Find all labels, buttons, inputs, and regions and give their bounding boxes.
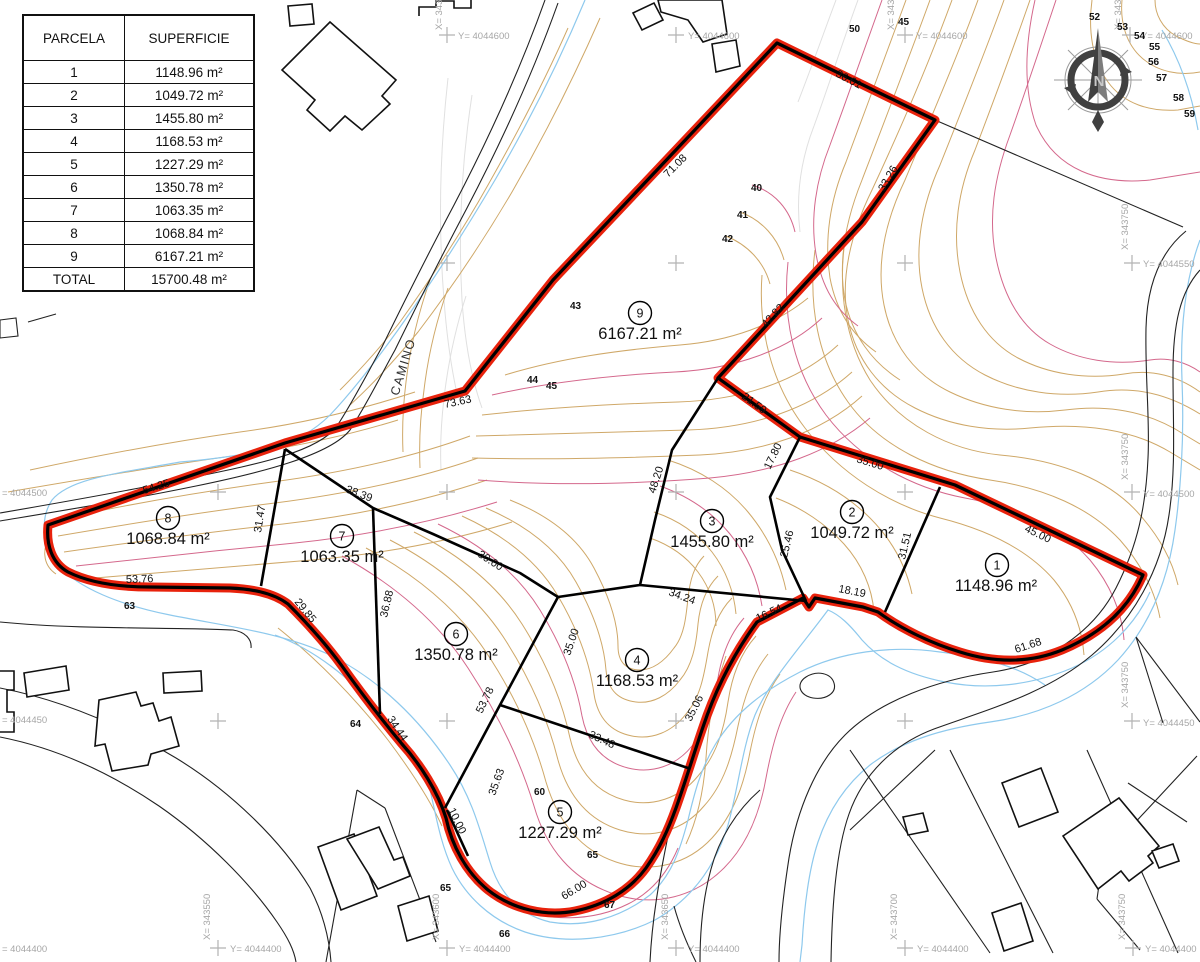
grid-label: X= 343700	[886, 0, 897, 30]
elevation-label: 65	[587, 850, 599, 861]
contour	[472, 396, 862, 459]
grid-label: X= 343750	[1117, 894, 1128, 940]
dimension-label: 35.63	[487, 767, 508, 797]
divider-line	[285, 449, 558, 597]
grid-label: Y= 4044600	[916, 31, 968, 42]
table-header-row: PARCELA SUPERFICIE	[24, 16, 254, 61]
grid-label: Y= 4044550	[1143, 259, 1195, 270]
dimension-labels: 36.61 33.26 71.08 42.82 21.59 35.00 45.0…	[126, 68, 1053, 903]
grid-label: Y= 4044600	[1141, 31, 1193, 42]
grid-label: Y= 4044400	[917, 944, 969, 955]
contour-index	[814, 0, 882, 326]
elevation-label: 56	[1148, 57, 1160, 68]
parcel-area-cell: 6167.21 m²	[125, 245, 254, 268]
grid-label: X= 343750	[1120, 434, 1131, 480]
contour	[798, 0, 836, 102]
table-row: 96167.21 m²	[24, 245, 254, 268]
elevation-label: 58	[1173, 93, 1185, 104]
column-header-superficie: SUPERFICIE	[125, 16, 254, 61]
elevation-label: 59	[1184, 109, 1196, 120]
lot-line	[1136, 637, 1200, 723]
compass-needle-light	[1098, 28, 1108, 102]
parcel-id-cell: 6	[24, 176, 125, 199]
dimension-label: 33.48	[587, 729, 617, 752]
parcel-label-3: 3 1455.80 m²	[670, 510, 754, 552]
parcel-id-cell: 4	[24, 130, 125, 153]
dimension-label: 35.00	[561, 627, 581, 657]
table-row: 71063.35 m²	[24, 199, 254, 222]
parcel-number: 5	[557, 806, 564, 820]
parcel-area: 1455.80 m²	[670, 533, 754, 551]
building-outline	[288, 4, 314, 26]
dimension-label: 25.46	[778, 529, 796, 559]
building-outline	[992, 903, 1033, 951]
dimension-label: 18.19	[837, 583, 866, 600]
contour	[420, 288, 448, 468]
grid-label: X= 343550	[202, 894, 213, 940]
elevation-label: 45	[546, 381, 558, 392]
building-outline	[712, 40, 740, 72]
parcel-number: 2	[849, 506, 856, 520]
grid-label: = 4044500	[2, 488, 47, 499]
parcel-number: 9	[637, 307, 644, 321]
dimension-label: 66.00	[559, 878, 589, 902]
grid-label: Y= 4044400	[459, 944, 511, 955]
building-outline	[1002, 768, 1058, 827]
elevation-label: 41	[737, 210, 749, 221]
grid-label: X= 343750	[1120, 204, 1131, 250]
dimension-label: 36.88	[378, 589, 396, 619]
parcel-label-2: 2 1049.72 m²	[810, 501, 894, 543]
parcel-area-cell: 1350.78 m²	[125, 176, 254, 199]
lot-line	[935, 120, 1183, 227]
table-row: 41168.53 m²	[24, 130, 254, 153]
parcel-number: 6	[453, 628, 460, 642]
table-row: TOTAL15700.48 m²	[24, 268, 254, 291]
elevation-label: 44	[527, 375, 539, 386]
parcel-area-cell: 1049.72 m²	[125, 84, 254, 107]
contour	[441, 296, 466, 470]
parcel-area-cell: 1227.29 m²	[125, 153, 254, 176]
parcel-area-cell: 1068.84 m²	[125, 222, 254, 245]
parcel-id-cell: 3	[24, 107, 125, 130]
divider-line	[640, 585, 806, 601]
elevation-label: 40	[751, 183, 763, 194]
elevation-label: 66	[499, 929, 511, 940]
grid-label: Y= 4044400	[1145, 944, 1197, 955]
parcel-label-4: 4 1168.53 m²	[596, 649, 679, 691]
grid-label: Y= 4044450	[1143, 718, 1195, 729]
parcel-number: 8	[165, 512, 172, 526]
building-outline	[282, 22, 396, 131]
parcel-label-9: 9 6167.21 m²	[598, 302, 682, 344]
pond-outline	[800, 673, 835, 698]
parcel-area: 1350.78 m²	[414, 646, 498, 664]
grid-label: Y= 4044500	[1143, 489, 1195, 500]
parcel-label-7: 7 1063.35 m²	[300, 525, 384, 567]
dimension-label: 35.00	[855, 453, 885, 473]
compass-needle-dark	[1088, 28, 1098, 102]
elevation-label: 43	[570, 301, 582, 312]
table-row: 61350.78 m²	[24, 176, 254, 199]
parcel-area-cell: 1063.35 m²	[125, 199, 254, 222]
grid-label: Y= 4044400	[230, 944, 282, 955]
elevation-label: 63	[124, 601, 136, 612]
contour	[460, 95, 482, 408]
parcel-area-cell: 1168.53 m²	[125, 130, 254, 153]
building-outline	[163, 671, 202, 693]
grid-label: X= 343700	[889, 894, 900, 940]
dimension-label: 53.76	[126, 573, 154, 586]
parcel-area: 1068.84 m²	[126, 530, 210, 548]
grid-label: X= 343600	[431, 894, 442, 940]
building-outline	[24, 666, 69, 697]
grid-label: Y= 4044400	[688, 944, 740, 955]
elevation-label: 67	[604, 900, 616, 911]
elevation-label: 45	[898, 17, 910, 28]
grid-label: X= 343650	[660, 894, 671, 940]
elevation-label: 64	[350, 719, 362, 730]
lot-line	[0, 314, 56, 338]
compass-rose-icon: N	[1054, 28, 1142, 132]
parcel-total-area-cell: 15700.48 m²	[125, 268, 254, 291]
elevation-label: 42	[722, 234, 734, 245]
grid-label: Y= 4044600	[688, 31, 740, 42]
parcel-id-cell: 8	[24, 222, 125, 245]
parcel-total-cell: TOTAL	[24, 268, 125, 291]
parcel-area: 1168.53 m²	[596, 672, 679, 690]
parcel-number: 1	[994, 559, 1001, 573]
contour	[845, 0, 1200, 470]
parcel-id-cell: 1	[24, 61, 125, 84]
parcel-number: 7	[339, 530, 346, 544]
dimension-label: 36.61	[834, 68, 864, 92]
parcel-number: 4	[634, 654, 641, 668]
table-row: 21049.72 m²	[24, 84, 254, 107]
road-edge	[0, 737, 296, 962]
parcel-id-cell: 7	[24, 199, 125, 222]
parcel-label-5: 5 1227.29 m²	[518, 801, 602, 843]
dimension-label: 21.59	[739, 391, 768, 417]
building-outline	[903, 813, 928, 835]
contour	[650, 538, 716, 626]
parcel-area-cell: 1148.96 m²	[125, 61, 254, 84]
parcel-area: 1063.35 m²	[300, 548, 384, 566]
elevation-label: 55	[1149, 42, 1161, 53]
dimension-label: 38.39	[344, 484, 374, 505]
grid-label: = 4044450	[2, 715, 47, 726]
table-row: 31455.80 m²	[24, 107, 254, 130]
building-outline	[633, 3, 663, 30]
dimension-label: 30.00	[475, 548, 505, 573]
parcel-number: 3	[709, 515, 716, 529]
grid-label: X= 343600	[434, 0, 445, 30]
cadastral-plan: Y= 4044600 Y= 4044600 Y= 4044600 Y= 4044…	[0, 0, 1200, 962]
dimension-label: 16.54	[754, 602, 784, 625]
column-header-parcela: PARCELA	[24, 16, 125, 61]
elevation-label: 54	[1134, 31, 1146, 42]
divider-line	[558, 378, 718, 597]
parcel-area: 1227.29 m²	[518, 824, 602, 842]
parcel-id-cell: 9	[24, 245, 125, 268]
camino-road-label: CAMINO	[388, 337, 419, 398]
parcel-area: 6167.21 m²	[598, 325, 682, 343]
parcel-area: 1049.72 m²	[810, 524, 894, 542]
contour	[441, 78, 458, 398]
elevation-label: 52	[1089, 12, 1101, 23]
parcel-area: 1148.96 m²	[955, 577, 1038, 595]
divider-line	[885, 487, 940, 612]
parcel-label-8: 8 1068.84 m²	[126, 507, 210, 549]
contour	[414, 532, 756, 803]
table-row: 51227.29 m²	[24, 153, 254, 176]
table-row: 81068.84 m²	[24, 222, 254, 245]
contour-index	[478, 418, 870, 484]
elevation-label: 60	[534, 787, 546, 798]
contour-lines-grey	[441, 0, 858, 470]
lot-line	[0, 622, 251, 648]
grid-label: Y= 4044600	[458, 31, 510, 42]
parcel-area-cell: 1455.80 m²	[125, 107, 254, 130]
elevation-label: 65	[440, 883, 452, 894]
grid-label: = 4044400	[2, 944, 47, 955]
table-row: 11148.96 m²	[24, 61, 254, 84]
compass-south-diamond	[1092, 110, 1104, 132]
parcel-label-1: 1 1148.96 m²	[955, 554, 1038, 596]
elevation-label: 57	[1156, 73, 1168, 84]
building-outline	[95, 692, 179, 771]
parcel-id-cell: 2	[24, 84, 125, 107]
parcel-area-table: PARCELA SUPERFICIE 11148.96 m² 21049.72 …	[22, 14, 255, 292]
contour	[30, 392, 415, 470]
dimension-label: 31.47	[252, 504, 268, 533]
dimension-label: 31.51	[896, 531, 914, 561]
compass-north-letter: N	[1094, 73, 1105, 90]
elevation-label: 53	[1117, 22, 1129, 33]
building-outline	[419, 0, 471, 16]
parcel-label-6: 6 1350.78 m²	[414, 623, 498, 665]
parcel-id-cell: 5	[24, 153, 125, 176]
grid-label: X= 343750	[1120, 662, 1131, 708]
elevation-label: 50	[849, 24, 861, 35]
